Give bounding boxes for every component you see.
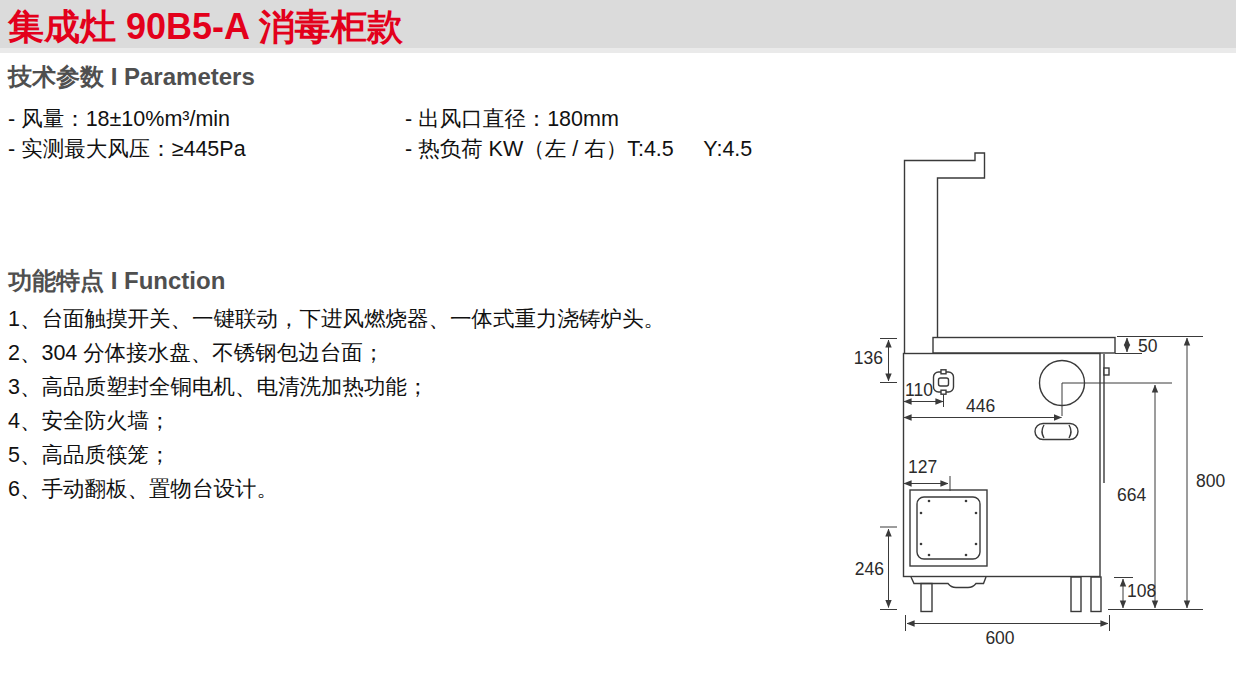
- flue-duct-outline: [905, 153, 985, 353]
- param-heat-load: - 热负荷 KW（左 / 右）T:4.5 Y:4.5: [405, 134, 752, 163]
- dim-label-664: 664: [1117, 485, 1146, 505]
- drip-tray: [911, 577, 986, 588]
- door-screw: [920, 543, 923, 546]
- countertop-slab: [933, 338, 1115, 354]
- handle-capsule-right-arc: [1069, 425, 1071, 438]
- gas-valve-bottom-tab: [941, 390, 946, 394]
- dim-label-50: 50: [1138, 336, 1158, 356]
- dim-label-246: 246: [855, 559, 884, 579]
- function-item: 5、高品质筷笼；: [8, 438, 665, 472]
- gas-valve-top-tab: [941, 370, 946, 374]
- rear-leg: [1091, 577, 1101, 612]
- door-screw: [975, 512, 978, 515]
- function-item: 3、高品质塑封全铜电机、电清洗加热功能；: [8, 370, 665, 404]
- handle-capsule-left-arc: [1042, 425, 1044, 438]
- function-list: 1、台面触摸开关、一键联动，下进风燃烧器、一体式重力浇铸炉头。 2、304 分体…: [8, 302, 665, 506]
- dim-label-800: 800: [1196, 471, 1225, 491]
- door-screw: [928, 500, 931, 503]
- front-leg: [921, 584, 932, 612]
- rear-leg: [1071, 577, 1081, 612]
- dim-label-600: 600: [985, 628, 1014, 648]
- param-max-pressure: - 实测最大风压：≥445Pa: [8, 134, 246, 163]
- access-door-inner: [917, 497, 980, 559]
- function-item: 4、安全防火墙；: [8, 404, 665, 438]
- param-airflow: - 风量：18±10%m³/min: [8, 104, 230, 133]
- spec-sheet-page: 集成灶 90B5-A 消毒柜款 技术参数 I Parameters - 风量：1…: [0, 0, 1236, 682]
- access-door-outer: [910, 490, 987, 566]
- technical-drawing: 136 50 110 446 127 246 664 800 108 600: [850, 130, 1236, 670]
- dim-label-127: 127: [908, 457, 937, 477]
- dim-label-108: 108: [1127, 581, 1156, 601]
- function-heading: 功能特点 I Function: [8, 265, 225, 297]
- function-item: 2、304 分体接水盘、不锈钢包边台面；: [8, 336, 665, 370]
- page-title: 集成灶 90B5-A 消毒柜款: [8, 3, 403, 52]
- param-outlet-diameter: - 出风口直径：180mm: [405, 104, 619, 133]
- door-screw: [975, 543, 978, 546]
- gas-valve-icon: [934, 372, 954, 392]
- dim-label-110: 110: [905, 380, 933, 400]
- back-panel-tab: [1104, 368, 1109, 375]
- door-screw: [928, 554, 931, 557]
- door-screw: [965, 554, 968, 557]
- door-screw: [965, 500, 968, 503]
- function-item: 6、手动翻板、置物台设计。: [8, 472, 665, 506]
- function-item: 1、台面触摸开关、一键联动，下进风燃烧器、一体式重力浇铸炉头。: [8, 302, 665, 336]
- dim-label-446: 446: [966, 396, 995, 416]
- parameters-heading: 技术参数 I Parameters: [8, 61, 255, 93]
- dim-label-136: 136: [854, 348, 883, 368]
- door-screw: [920, 512, 923, 515]
